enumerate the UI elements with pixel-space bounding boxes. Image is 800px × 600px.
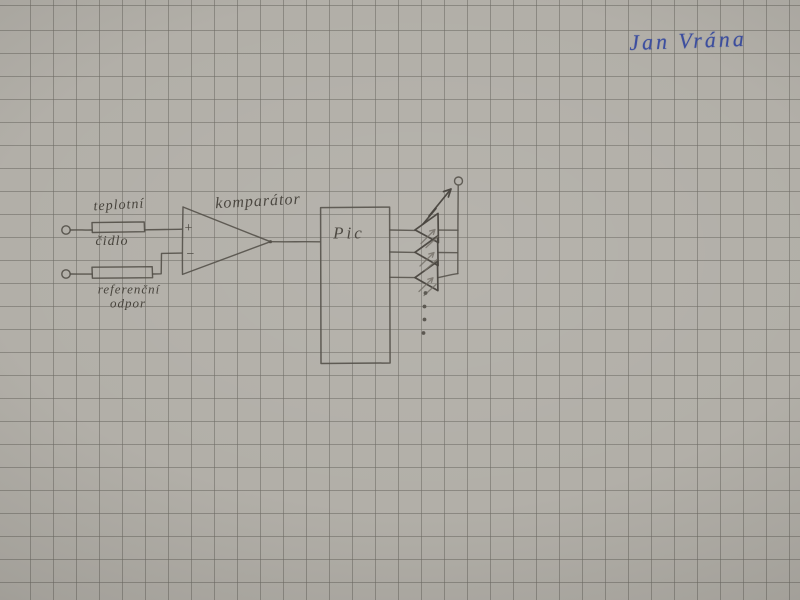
signature: Jan Vrána [629, 26, 747, 56]
reference-resistor-label-line1: referenční [98, 283, 160, 296]
dot-icon [422, 331, 426, 335]
sensor-input-terminal-icon [62, 226, 70, 234]
reference-wire-step [153, 253, 182, 274]
temperature-sensor-label-line2: čidlo [96, 235, 129, 249]
comparator-minus-input-label: − [187, 248, 196, 262]
dot-icon [423, 318, 427, 322]
reference-resistor [92, 267, 153, 279]
pic-label: Pic [333, 225, 365, 242]
graph-paper-photo: teplotní čidlo referenční odpor komparát… [0, 0, 800, 600]
sensor-wire-right [145, 229, 182, 230]
temperature-sensor-resistor [92, 222, 145, 233]
more-outputs-dots [422, 291, 428, 335]
led3-rail-connector [438, 274, 458, 278]
dot-icon [423, 305, 427, 309]
output-terminal-icon [455, 177, 463, 185]
dot-icon [424, 291, 428, 295]
comparator-plus-input-label: + [185, 222, 194, 236]
temperature-sensor-label-line1: teplotní [93, 198, 144, 215]
reference-input-terminal-icon [62, 270, 70, 278]
comparator-triangle [182, 207, 270, 274]
reference-resistor-label-line2: odpor [110, 297, 146, 310]
